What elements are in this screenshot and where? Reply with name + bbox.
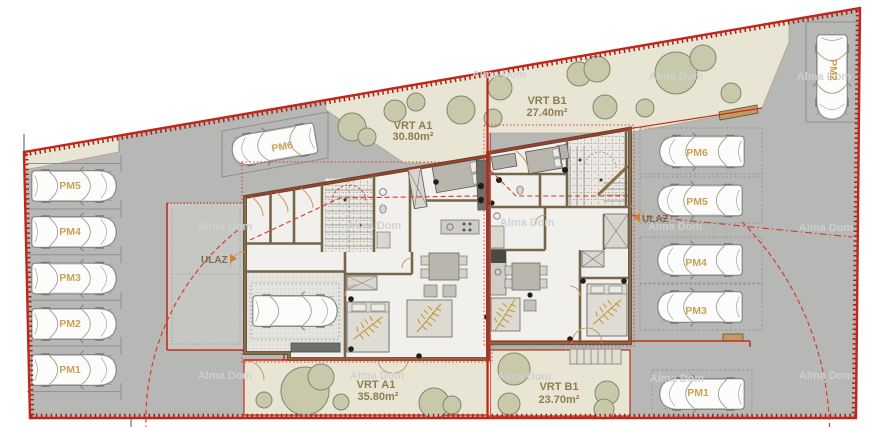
svg-text:35.80m²: 35.80m² [358, 391, 399, 403]
svg-text:27.40m²: 27.40m² [527, 107, 568, 119]
svg-text:Alma Dom: Alma Dom [799, 222, 854, 234]
svg-text:Alma Dom: Alma Dom [650, 373, 705, 385]
svg-text:ULAZ: ULAZ [201, 255, 228, 266]
svg-text:PM5: PM5 [59, 180, 81, 192]
svg-text:VRT A1: VRT A1 [357, 379, 396, 391]
svg-text:PM4: PM4 [685, 257, 707, 269]
svg-text:PM3: PM3 [685, 305, 707, 317]
svg-text:PM1: PM1 [59, 364, 81, 376]
svg-text:Alma Dom: Alma Dom [799, 370, 854, 382]
svg-text:PM3: PM3 [59, 272, 81, 284]
svg-text:Alma Dom: Alma Dom [472, 69, 527, 81]
svg-text:VRT B1: VRT B1 [539, 381, 578, 393]
svg-text:PM4: PM4 [59, 226, 81, 238]
svg-text:PM5: PM5 [686, 196, 708, 208]
svg-text:Alma Dom: Alma Dom [500, 217, 555, 229]
svg-text:23.70m²: 23.70m² [539, 394, 580, 406]
svg-text:Alma Dom: Alma Dom [198, 370, 253, 382]
svg-text:PM6: PM6 [686, 147, 708, 159]
svg-text:Alma Dom: Alma Dom [347, 220, 402, 232]
svg-text:Alma Dom: Alma Dom [797, 71, 852, 83]
svg-text:PM1: PM1 [687, 387, 709, 399]
svg-text:VRT B1: VRT B1 [527, 95, 566, 107]
svg-text:PM2: PM2 [59, 318, 81, 330]
svg-text:Alma Dom: Alma Dom [198, 221, 253, 233]
svg-text:ULAZ: ULAZ [642, 214, 669, 225]
svg-text:30.80m²: 30.80m² [393, 131, 434, 143]
svg-text:PM2: PM2 [827, 59, 839, 81]
svg-text:Alma Dom: Alma Dom [649, 71, 704, 83]
